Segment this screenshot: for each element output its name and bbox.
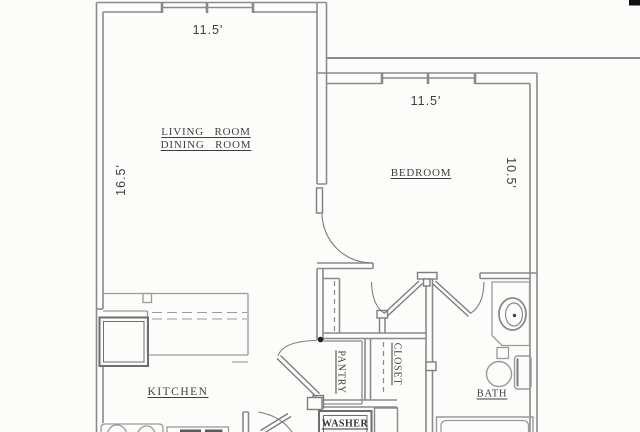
dimension-bedroom-depth: 10.5': [504, 157, 518, 189]
label-living-room: LIVING ROOM: [161, 126, 252, 139]
dimension-bedroom-width: 11.5': [411, 94, 442, 108]
range-stove: [101, 424, 163, 432]
label-closet: CLOSET: [392, 343, 403, 386]
scan-artifact: [629, 0, 640, 6]
exterior-walls: [97, 3, 640, 432]
label-kitchen: KITCHEN: [148, 386, 209, 398]
window-bedroom: [382, 73, 475, 85]
door-bath-leaf: [433, 281, 484, 317]
bathtub: [437, 417, 534, 432]
label-bath: BATH: [477, 389, 508, 400]
kitchen-sink: [167, 427, 229, 432]
window-living-room: [162, 3, 253, 14]
bath-vanity: [492, 282, 530, 359]
floor-plan-linework: [0, 0, 640, 432]
dryer-box: [375, 408, 398, 432]
dimension-living-depth: 16.5': [114, 164, 128, 196]
door-pantry: [277, 337, 323, 397]
label-living-dining-room: LIVING ROOM DINING ROOM: [161, 126, 252, 152]
floor-plan: LIVING ROOM DINING ROOM 11.5' 16.5' BEDR…: [0, 0, 640, 432]
label-pantry: PANTRY: [336, 350, 347, 393]
door-entry: [259, 412, 293, 432]
bath-sink: [499, 298, 526, 330]
label-washer: WASHER: [322, 419, 368, 430]
kitchen-counter: [103, 294, 248, 363]
door-living-to-bedroom: [317, 188, 373, 263]
refrigerator: [100, 318, 149, 367]
dimension-living-width: 11.5': [193, 23, 224, 37]
toilet: [487, 356, 532, 389]
label-bedroom: BEDROOM: [391, 167, 452, 179]
interior-walls: [243, 263, 537, 432]
label-dining-room: DINING ROOM: [161, 139, 252, 152]
